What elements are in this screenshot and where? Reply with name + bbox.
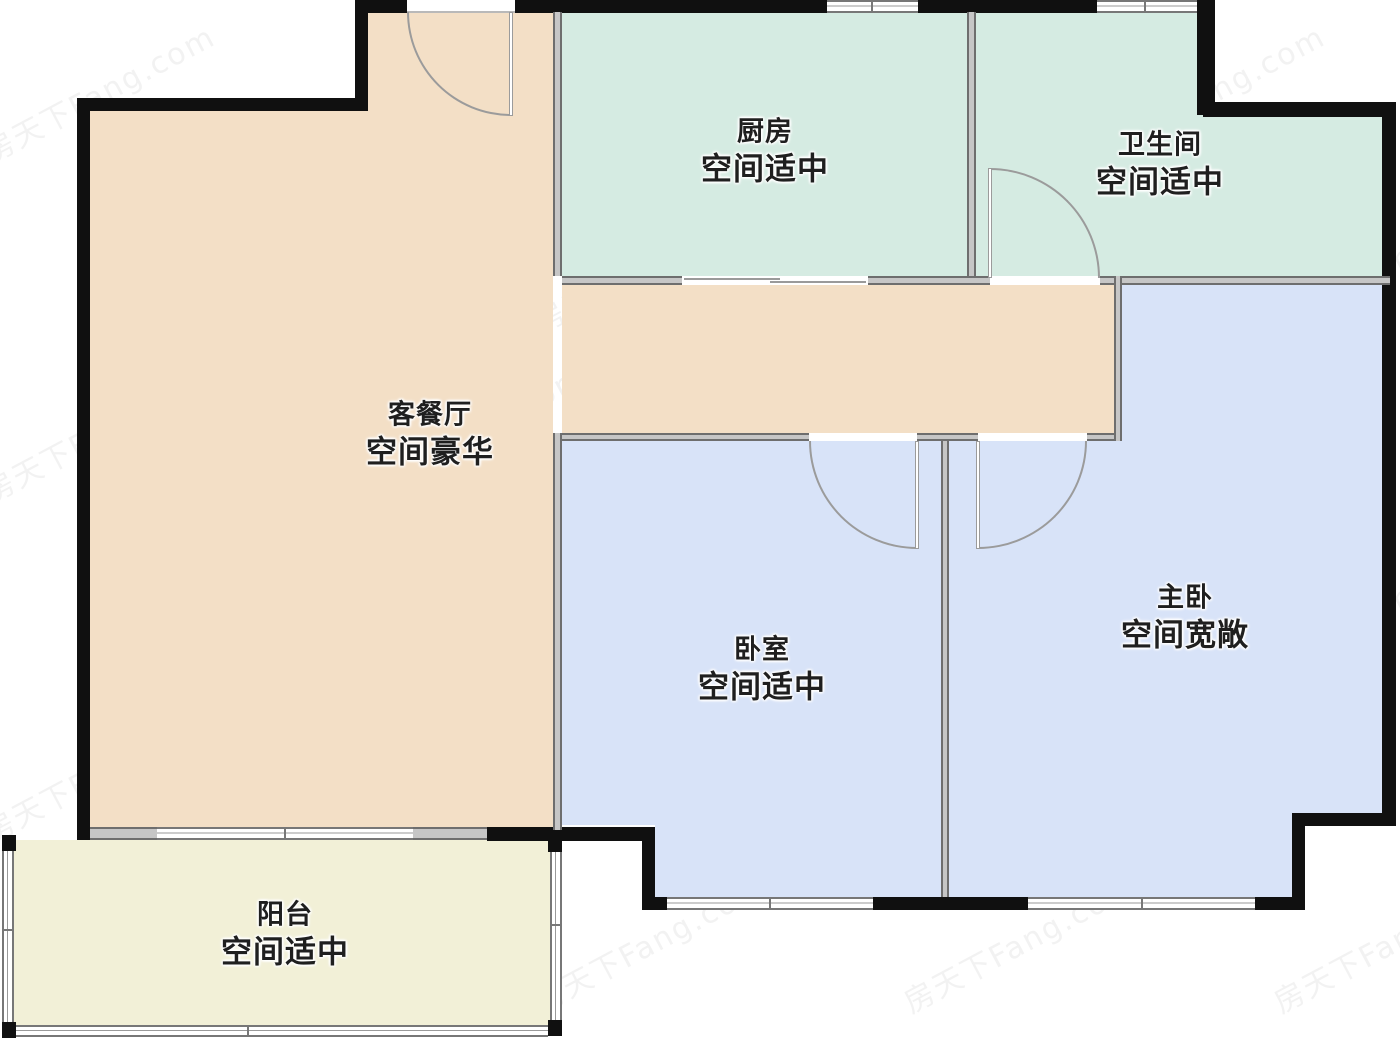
room-label-kitchen: 厨房 空间适中 bbox=[701, 114, 829, 189]
bedroom-floor-bottom bbox=[655, 825, 941, 897]
balcony-window-left bbox=[2, 851, 14, 1022]
room-name: 主卧 bbox=[1121, 580, 1249, 615]
balcony-corner-post bbox=[548, 1020, 562, 1036]
window-mullion bbox=[769, 897, 771, 910]
wall-segment bbox=[355, 0, 368, 110]
balcony-corner-post bbox=[2, 835, 16, 851]
wall-segment bbox=[553, 12, 562, 276]
wall-segment bbox=[917, 433, 978, 441]
wall-segment bbox=[1114, 276, 1122, 441]
master-bedroom-door-leaf bbox=[976, 441, 980, 549]
room-desc: 空间宽敞 bbox=[1121, 615, 1249, 655]
wall-segment bbox=[642, 827, 655, 910]
balcony-window-bottom bbox=[16, 1025, 548, 1037]
room-label-living: 客餐厅 空间豪华 bbox=[366, 397, 494, 472]
window-mullion bbox=[284, 827, 286, 840]
room-label-balcony: 阳台 空间适中 bbox=[221, 897, 349, 972]
wall-segment bbox=[1292, 813, 1396, 826]
room-name: 阳台 bbox=[221, 897, 349, 932]
room-name: 卧室 bbox=[698, 632, 826, 667]
room-desc: 空间适中 bbox=[221, 932, 349, 972]
room-desc: 空间适中 bbox=[1096, 162, 1224, 202]
wall-segment bbox=[873, 897, 1028, 910]
wall-segment bbox=[487, 827, 650, 841]
master-bedroom-floor-bottom bbox=[949, 813, 1292, 897]
room-name: 卫生间 bbox=[1096, 127, 1224, 162]
master-bedroom-door-opening bbox=[978, 433, 1087, 441]
room-label-bathroom: 卫生间 空间适中 bbox=[1096, 127, 1224, 202]
wall-segment bbox=[77, 98, 90, 840]
wall-segment bbox=[562, 276, 682, 285]
window-mullion bbox=[2, 929, 14, 931]
bathroom-floor-right bbox=[1197, 115, 1382, 276]
wall-segment bbox=[918, 0, 1097, 13]
bedroom-door-opening bbox=[809, 433, 917, 441]
hallway-floor bbox=[562, 285, 1114, 433]
room-name: 客餐厅 bbox=[366, 397, 494, 432]
wall-segment bbox=[1382, 102, 1396, 825]
room-label-bedroom: 卧室 空间适中 bbox=[698, 632, 826, 707]
room-name: 厨房 bbox=[701, 114, 829, 149]
room-label-master: 主卧 空间宽敞 bbox=[1121, 580, 1249, 655]
balcony-window-right bbox=[550, 852, 562, 1020]
window-mullion bbox=[247, 1025, 249, 1037]
room-desc: 空间适中 bbox=[701, 149, 829, 189]
balcony-corner-post bbox=[2, 1022, 16, 1038]
wall-segment bbox=[562, 433, 809, 441]
window-mullion bbox=[871, 0, 873, 13]
bathroom-window bbox=[1097, 0, 1197, 13]
wall-segment bbox=[1255, 897, 1305, 910]
floor-plan: 房天下Fang.com房天下Fang.com房天下Fang.com房天下Fang… bbox=[0, 0, 1400, 1041]
wall-segment bbox=[941, 441, 949, 897]
wall-segment bbox=[1100, 276, 1390, 285]
wall-segment bbox=[1203, 102, 1396, 117]
window-mullion bbox=[1144, 0, 1146, 13]
window-mullion bbox=[550, 924, 562, 926]
wall-segment bbox=[1292, 813, 1305, 910]
window-mullion bbox=[1141, 897, 1143, 910]
wall-segment bbox=[1197, 0, 1215, 115]
wall-segment bbox=[77, 98, 368, 111]
wall-segment bbox=[868, 276, 990, 285]
bathroom-door-leaf bbox=[988, 168, 992, 278]
entrance-door-leaf bbox=[509, 12, 513, 116]
wall-segment bbox=[553, 433, 562, 830]
sliding-door-panel bbox=[684, 278, 780, 280]
balcony-corner-post bbox=[548, 838, 562, 852]
sliding-door-panel bbox=[770, 281, 866, 283]
wall-segment bbox=[967, 12, 976, 276]
bedroom-door-leaf bbox=[915, 441, 919, 549]
room-desc: 空间豪华 bbox=[366, 432, 494, 472]
master-bedroom-floor-top bbox=[1122, 285, 1382, 433]
room-desc: 空间适中 bbox=[698, 667, 826, 707]
